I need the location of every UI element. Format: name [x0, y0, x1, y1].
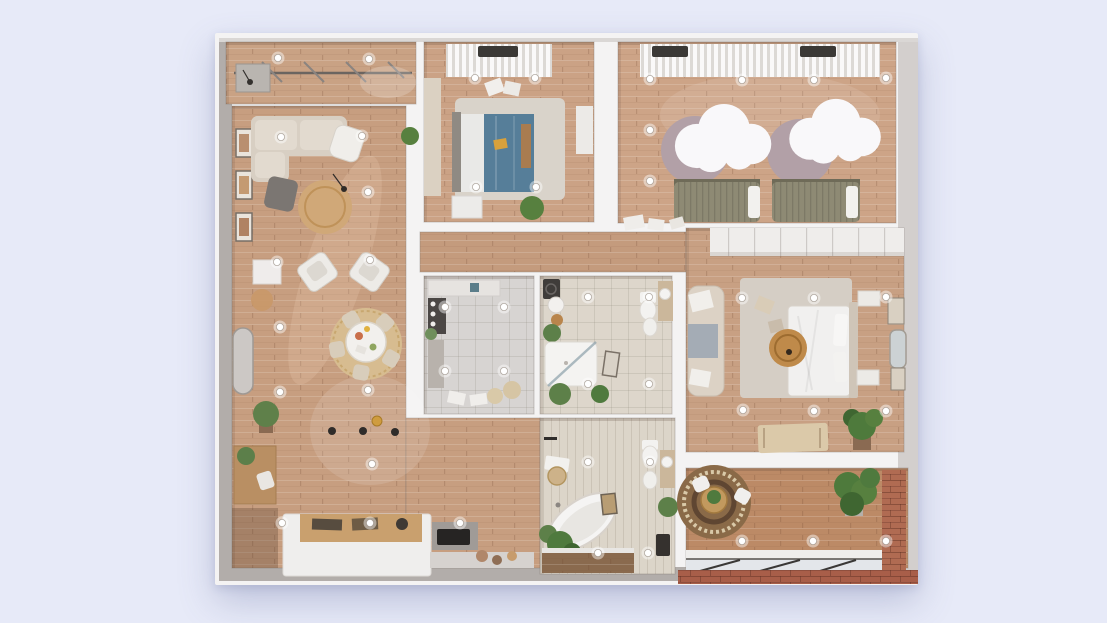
kids-bed-texture: [674, 182, 760, 222]
ceiling-light-dot: [646, 458, 653, 465]
ceiling-light-dot: [646, 75, 653, 82]
ceiling-light-dot: [366, 519, 373, 526]
divider-dresser: [576, 106, 593, 154]
cloud-decor: [694, 138, 728, 172]
ceiling-light-dot: [882, 407, 889, 414]
ceiling-light-dot: [594, 549, 601, 556]
bidet: [643, 471, 657, 489]
gallery-frame-art: [239, 218, 249, 236]
nightstand: [858, 291, 880, 306]
ceiling-light-dot: [584, 458, 591, 465]
settee-throw: [688, 324, 718, 358]
dining-chair: [352, 364, 370, 382]
outer-wall-top: [219, 38, 918, 42]
ceiling-light-dot: [531, 74, 538, 81]
wall-frame: [891, 368, 905, 390]
cloud-decor: [723, 138, 754, 169]
loggia-floor-lamp: [247, 79, 253, 85]
ceiling-light-dot: [646, 126, 653, 133]
pampas-plant: [251, 289, 273, 311]
ceiling-light-dot: [809, 537, 816, 544]
bed-sheet: [461, 114, 487, 192]
ceiling-light-dot: [500, 367, 507, 374]
entry-floor-shadow: [232, 508, 278, 568]
skylight-window: [478, 46, 518, 57]
loggia-sun-patch: [360, 66, 416, 98]
utility-dish: [431, 312, 436, 317]
room-utility-room-wall-shadow-top: [424, 276, 534, 279]
ceiling-light-dot: [278, 519, 285, 526]
vanity-counter: [660, 450, 675, 488]
runner-rug: [758, 423, 829, 453]
shower-plant: [543, 324, 561, 342]
terrace-brick-bottom-texture: [678, 570, 918, 584]
console-plant: [237, 447, 255, 465]
ceiling-light-dot: [738, 294, 745, 301]
ceiling-light-dot: [584, 380, 591, 387]
settee-pillow: [689, 368, 711, 387]
utility-teal-box: [470, 283, 479, 292]
room-shower-room-wall-shadow-left: [540, 276, 543, 414]
master-pillow: [833, 352, 848, 383]
room-utility-room-wall-shadow-left: [424, 276, 427, 414]
bath-plant: [549, 383, 571, 405]
ceiling-light-dot: [738, 537, 745, 544]
gallery-frame-art: [239, 134, 249, 152]
room-living-room-wall-shadow-top: [232, 106, 406, 109]
laundry-basket: [548, 467, 566, 485]
pendant-lamp-black: [328, 427, 336, 435]
kids-chair: [647, 218, 664, 231]
island-tray: [312, 518, 342, 530]
ceiling-light-dot: [882, 293, 889, 300]
ceiling-light-dot: [584, 293, 591, 300]
ceiling-light-dot: [368, 460, 375, 467]
ceiling-light-dot: [276, 323, 283, 330]
table-dish: [355, 332, 363, 340]
bath2-wood-floor-texture: [542, 553, 634, 573]
room-kids-room-wall-shadow-left: [618, 42, 621, 223]
utility-cabinet-top: [428, 280, 500, 296]
ceiling-light-dot: [273, 258, 280, 265]
ceiling-light-dot: [358, 132, 365, 139]
ceiling-light-dot: [646, 177, 653, 184]
bath2-plant: [658, 497, 678, 517]
utility-dish: [431, 322, 436, 327]
table-dish: [370, 344, 377, 351]
screenshot-root: [0, 0, 1107, 623]
bath-plant: [591, 385, 609, 403]
kids-bed-pillow: [748, 186, 760, 218]
bath2-wood-ledge: [542, 548, 634, 553]
ceiling-light-dot: [739, 406, 746, 413]
ceiling-light-dot: [274, 54, 281, 61]
utility-shelf: [428, 340, 444, 388]
island-bowl: [396, 518, 408, 530]
bed-headboard: [452, 112, 461, 192]
tub-faucet: [556, 503, 561, 508]
gallery-frame-art: [239, 176, 249, 194]
ceiling-light-dot: [810, 407, 817, 414]
ceiling-light-dot: [810, 294, 817, 301]
plant-by-opening: [401, 127, 419, 145]
skylight-window: [652, 46, 688, 57]
table-dish: [364, 326, 370, 332]
floorplan-svg: [215, 33, 918, 585]
utility-dish: [431, 302, 436, 307]
vanity-counter: [658, 281, 673, 321]
ceiling-light-dot: [471, 74, 478, 81]
ceiling-light-dot: [276, 388, 283, 395]
ceiling-light-dot: [441, 367, 448, 374]
room-hallway-floor-texture: [420, 232, 686, 272]
bedside-ladder: [521, 124, 531, 168]
terrace-window-sill: [686, 550, 882, 559]
room-loggia-wall-shadow-left: [226, 42, 229, 104]
master-closet-texture: [710, 228, 904, 256]
standing-mirror: [602, 351, 619, 377]
bidet: [643, 318, 657, 336]
skylight-window: [800, 46, 836, 57]
utility-greenery: [425, 328, 437, 340]
cloud-decor: [835, 132, 865, 162]
ceiling-light-dot: [456, 519, 463, 526]
arch-mirror: [233, 328, 253, 394]
kids-bed-pillow: [846, 186, 858, 218]
vanity-sink: [660, 289, 671, 300]
foot-bench: [452, 196, 482, 218]
kitchen-pot: [492, 555, 502, 565]
cloud-decor: [807, 131, 840, 164]
ceiling-light-dot: [645, 293, 652, 300]
tall-wardrobe: [424, 78, 441, 196]
floor-lamp: [341, 186, 347, 192]
utility-basket: [487, 388, 503, 404]
shower-drain: [564, 361, 568, 365]
table-plant: [707, 490, 721, 504]
floorplan-image: [215, 33, 918, 585]
ceiling-light-dot: [882, 74, 889, 81]
kitchen-pot: [507, 551, 517, 561]
black-shelf-unit: [656, 534, 670, 556]
ceiling-light-dot: [366, 256, 373, 263]
room-loggia-wall-shadow-top: [226, 42, 416, 45]
leaning-frame: [601, 493, 617, 514]
wall-mirror: [890, 330, 906, 368]
ceiling-light-dot: [364, 386, 371, 393]
kitchen-pot: [476, 550, 488, 562]
sofa-cushion: [255, 152, 285, 178]
ceiling-light-dot: [532, 183, 539, 190]
terrace-brick-right-texture: [882, 470, 906, 570]
master-closet-shadow: [710, 252, 904, 257]
ceiling-light-dot: [810, 76, 817, 83]
dried-bouquet: [503, 381, 521, 399]
plant-stand: [253, 401, 279, 427]
rattan-pendant-core: [786, 349, 792, 355]
ceiling-light-dot: [472, 183, 479, 190]
outer-wall-left: [219, 38, 232, 581]
pendant-lamp-black: [359, 427, 367, 435]
cooktop: [437, 529, 470, 545]
ceiling-light-dot: [364, 188, 371, 195]
terrace-plant: [860, 468, 880, 488]
loggia-cabinet: [236, 64, 270, 92]
wall-frame: [888, 298, 904, 324]
ceiling-light-dot: [645, 380, 652, 387]
pendant-lamp-gold: [372, 416, 382, 426]
nightstand: [857, 370, 879, 385]
room-bathroom-wall-shadow-top: [540, 418, 675, 421]
ceiling-light-dot: [644, 549, 651, 556]
ceiling-light-dot: [738, 76, 745, 83]
bedroom-plant: [520, 196, 544, 220]
ceiling-light-dot: [277, 133, 284, 140]
master-pillow: [833, 314, 848, 347]
ceiling-light-dot: [441, 303, 448, 310]
vanity-sink: [662, 457, 673, 468]
pedestal-sink: [548, 297, 564, 313]
ceiling-light-dot: [365, 55, 372, 62]
ceiling-light-dot: [500, 303, 507, 310]
dining-chair: [328, 340, 346, 358]
utility-box: [469, 393, 487, 406]
terrace-plant: [840, 492, 864, 516]
pendant-lamp-black: [391, 428, 399, 436]
room-shower-room-wall-shadow-top: [540, 276, 672, 279]
ceiling-light-dot: [882, 537, 889, 544]
towel-rail: [544, 437, 557, 440]
